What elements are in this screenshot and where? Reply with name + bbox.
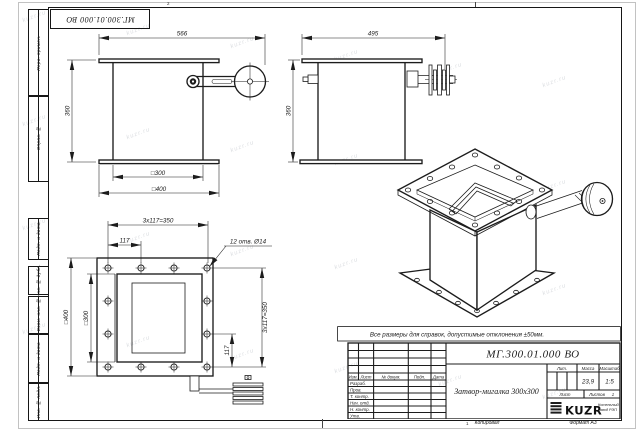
format-label: Формат А3	[551, 420, 615, 426]
dim-plan-inner: □300	[83, 310, 90, 325]
company-logo-icon	[551, 402, 562, 414]
margin-column-sprav-no: Справ. №	[28, 95, 49, 182]
title-block: Все размеры для справок, допустимые откл…	[337, 326, 621, 419]
mass-label: Масса	[582, 366, 595, 371]
dim-plan-holes-note: 12 отв. Ø14	[230, 239, 267, 246]
front-view: 566 360 □300 □400	[60, 25, 275, 200]
drawing-sheet: kuzr.rukuzr.rukuzr.rukuzr.rukuzr.rukuzr.…	[0, 0, 644, 430]
side-shaft-counterweight	[407, 65, 457, 95]
row-razrab: Разраб.	[350, 381, 366, 386]
zone-tick-top	[475, 2, 476, 7]
dim-front-height: 360	[65, 105, 72, 116]
col-podp: Подп.	[414, 375, 425, 380]
mass-value: 23,9	[581, 379, 595, 386]
col-list: Лист	[359, 375, 371, 380]
front-body	[99, 59, 219, 164]
margin-column-inv-podl: Инв. № подл.	[28, 383, 49, 421]
dim-plan-pitch-right: 3х117=350	[262, 302, 269, 333]
dim-plan-pitch-top: 3х117=350	[143, 218, 174, 225]
col-dokum: № докум.	[382, 375, 401, 380]
margin-column-inv-dubl: Инв. № дубл.	[28, 266, 49, 295]
part-name: Затвор-мигалка 300х300	[454, 387, 539, 396]
company-name-line1: Котельный	[598, 403, 620, 407]
plan-lever-counterweight	[190, 376, 263, 405]
row-tkontr: Т. контр.	[350, 394, 369, 399]
company-logo-text: KUZR	[565, 404, 602, 418]
dim-front-width: 566	[177, 31, 188, 38]
col-data: Дата	[432, 375, 445, 380]
dim-front-inner: □300	[151, 170, 166, 177]
scale-value: 1:5	[605, 379, 614, 386]
row-prov: Пров.	[350, 387, 362, 392]
front-lever-counterweight	[187, 63, 269, 101]
sheets-label: Листов	[588, 392, 605, 397]
top-stamp-text: МГ.300.01.000 ВО	[66, 15, 135, 24]
plan-flange	[97, 258, 213, 376]
sheet-label: Лист	[558, 392, 570, 397]
lit-label: Лит.	[556, 366, 567, 371]
plan-view: 3х117=350 117 12 отв. Ø14 □400 □300 3х11…	[60, 215, 320, 415]
company-name-line2: завод РЭП	[597, 408, 617, 412]
sheets-value: 1	[612, 392, 615, 397]
dim-plan-outer: □400	[63, 309, 70, 324]
dim-side-height: 360	[286, 105, 293, 116]
doc-number: МГ.300.01.000 ВО	[485, 349, 579, 361]
row-utv: Утв.	[350, 413, 360, 418]
isometric-view	[355, 140, 620, 330]
scale-label: Масштаб	[599, 366, 620, 371]
dim-plan-pitch-right-small: 117	[224, 345, 231, 356]
margin-column-perv-primen: Перв. примен.	[28, 9, 49, 97]
margin-column-podp-data-2: Подп. и дата	[28, 334, 49, 383]
col-izm: Изм.	[349, 375, 358, 380]
copied-label: Копировал	[455, 420, 519, 426]
dim-front-outer: □400	[152, 186, 167, 193]
plan-bolt-holes	[103, 263, 213, 373]
dim-plan-pitch-top-small: 117	[119, 238, 130, 245]
zone-tick-bottom	[322, 419, 323, 428]
margin-column-podp-data-1: Подп. и дата	[28, 218, 49, 260]
zone-number-top: 2	[167, 1, 170, 6]
dim-side-width: 495	[368, 31, 379, 38]
general-note: Все размеры для справок, допустимые откл…	[370, 332, 544, 339]
row-nkontr: Н. контр.	[350, 407, 370, 412]
margin-column-vzam-inv: Взам. инв. №	[28, 296, 49, 334]
row-nachotd: Нач. отд.	[350, 400, 370, 405]
